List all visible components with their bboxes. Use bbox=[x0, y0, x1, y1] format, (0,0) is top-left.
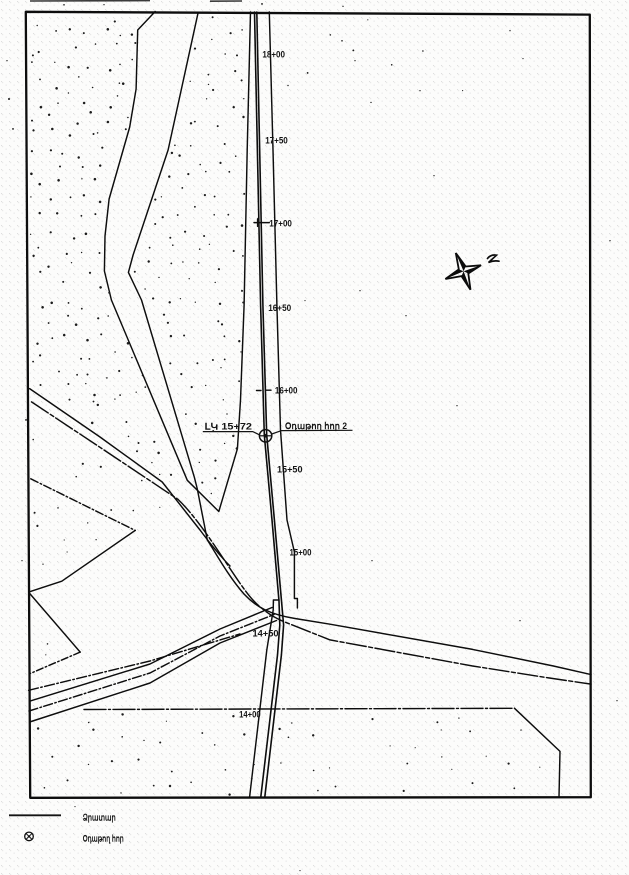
svg-text:Օդաթող հոր: Օդաթող հոր bbox=[83, 832, 124, 844]
svg-text:15+50: 15+50 bbox=[277, 464, 303, 474]
svg-text:18+00: 18+00 bbox=[262, 50, 285, 60]
svg-text:14+00: 14+00 bbox=[239, 709, 261, 719]
svg-text:14+50: 14+50 bbox=[253, 629, 279, 639]
svg-text:17+00: 17+00 bbox=[269, 218, 292, 228]
svg-text:16+50: 16+50 bbox=[268, 303, 291, 313]
svg-text:15+00: 15+00 bbox=[290, 547, 312, 557]
svg-text:16+00: 16+00 bbox=[275, 386, 298, 396]
svg-text:ԼԿ 15+72: ԼԿ 15+72 bbox=[205, 421, 253, 431]
svg-text:17+50: 17+50 bbox=[265, 135, 288, 145]
svg-text:Ձրատար: Ձրատար bbox=[83, 812, 116, 823]
